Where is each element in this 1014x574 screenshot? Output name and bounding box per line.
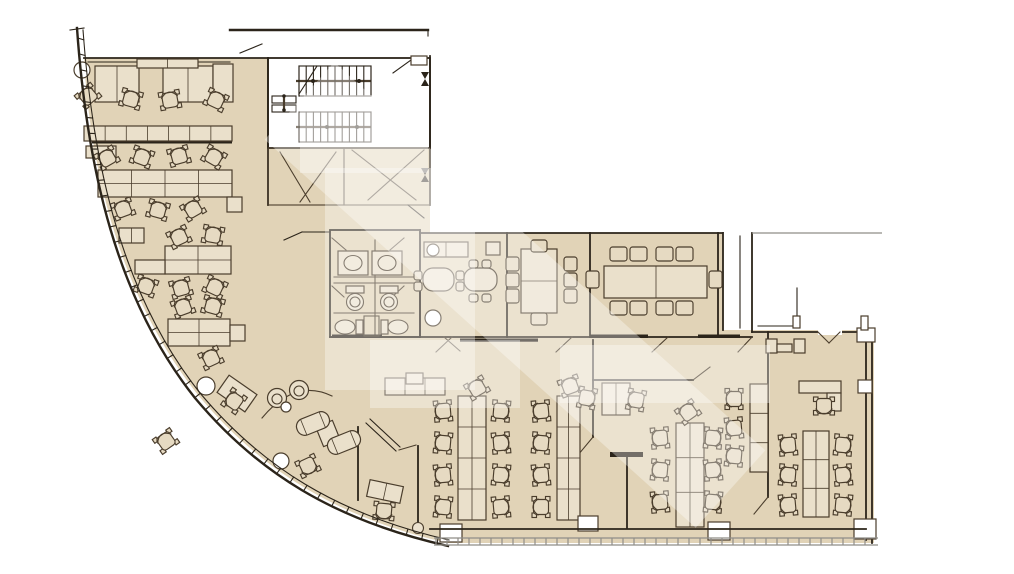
meeting-chair — [630, 247, 647, 261]
toilet-cistern — [356, 320, 363, 334]
desk-bench — [750, 384, 768, 472]
meeting-chair — [469, 294, 478, 302]
desk-bench — [168, 319, 230, 346]
desk-bench — [803, 431, 829, 517]
break-table — [464, 268, 497, 291]
column — [411, 56, 427, 65]
meeting-chair — [506, 289, 519, 303]
desk-bench — [135, 260, 165, 274]
meeting-chair — [564, 257, 577, 271]
task-chair — [491, 464, 511, 486]
meeting-chair — [456, 271, 464, 280]
task-chair — [778, 464, 798, 486]
task-chair — [650, 459, 670, 481]
desk-bench — [557, 396, 580, 520]
column — [861, 316, 868, 330]
meeting-chair — [506, 257, 519, 271]
desk-bench — [676, 423, 704, 527]
desk-bench — [119, 228, 144, 243]
door-leaf — [240, 44, 262, 53]
boardroom-table — [604, 266, 707, 298]
task-chair — [724, 445, 744, 467]
desk-bench — [230, 325, 245, 341]
column — [708, 522, 730, 540]
meeting-chair — [506, 273, 519, 287]
sink-basin — [378, 256, 396, 271]
task-chair — [532, 497, 550, 518]
column — [793, 316, 800, 328]
task-chair — [833, 494, 853, 516]
floor-plan-canvas: office floor plan with curved facade — [0, 0, 1014, 574]
meeting-chair — [564, 273, 577, 287]
meeting-chair — [531, 313, 547, 325]
meeting-chair — [456, 282, 464, 291]
meeting-chair — [676, 301, 693, 315]
toilet-cistern — [380, 286, 398, 293]
task-chair — [778, 494, 798, 516]
column — [440, 524, 462, 542]
meeting-chair — [482, 260, 491, 268]
break-table — [423, 268, 454, 291]
task-chair — [531, 432, 551, 454]
toilet-bowl — [388, 320, 408, 334]
column — [281, 402, 291, 412]
desk-bench — [799, 381, 841, 393]
toilet-bowl — [381, 294, 398, 311]
task-chair — [703, 427, 723, 449]
floor-plan-drawing: office floor plan with curved facade — [0, 0, 1014, 574]
column — [427, 244, 439, 256]
desk-bench — [766, 339, 777, 353]
task-chair — [833, 464, 853, 486]
meeting-chair — [469, 260, 478, 268]
toilet-bowl — [347, 294, 364, 311]
task-chair — [531, 400, 551, 422]
task-chair — [491, 432, 511, 454]
meeting-chair — [610, 247, 627, 261]
task-chair — [778, 434, 798, 456]
desk-bench — [137, 59, 198, 68]
meeting-chair — [586, 271, 599, 288]
meeting-chair — [656, 301, 673, 315]
tub-chair — [290, 381, 309, 400]
task-chair — [433, 400, 453, 422]
task-chair — [531, 464, 551, 486]
task-chair — [703, 459, 723, 481]
task-chair — [152, 428, 180, 455]
meeting-chair — [482, 294, 491, 302]
toilet-cistern — [346, 286, 364, 293]
meeting-chair — [414, 271, 422, 280]
column — [858, 380, 872, 393]
toilet-cistern — [381, 320, 388, 334]
toilet-bowl — [335, 320, 355, 334]
task-chair — [650, 491, 670, 513]
desk-bench — [165, 246, 231, 274]
desk-bench — [84, 126, 232, 141]
task-chair — [433, 464, 453, 486]
desk-bench — [794, 339, 805, 353]
task-chair — [433, 496, 453, 518]
task-chair — [725, 389, 743, 410]
task-chair — [491, 496, 511, 518]
meeting-chair — [656, 247, 673, 261]
meeting-chair — [564, 289, 577, 303]
column — [273, 453, 289, 469]
task-chair — [833, 434, 853, 456]
task-chair — [491, 400, 511, 422]
sink-basin — [344, 256, 362, 271]
meeting-chair — [531, 240, 547, 252]
task-chair — [650, 427, 670, 449]
meeting-chair — [630, 301, 647, 315]
desk-bench — [602, 383, 630, 415]
desk-bench — [227, 197, 242, 212]
task-chair — [814, 397, 835, 415]
meeting-chair — [610, 301, 627, 315]
meeting-chair — [676, 247, 693, 261]
desk-bench — [777, 344, 792, 352]
desk-bench — [98, 170, 232, 197]
column — [425, 310, 441, 326]
task-chair — [703, 491, 723, 513]
meeting-chair — [709, 271, 722, 288]
meeting-chair — [414, 282, 422, 291]
desk-bench — [458, 396, 486, 520]
desk-bench — [486, 242, 500, 255]
task-chair — [724, 417, 744, 439]
task-chair — [433, 432, 453, 454]
desk-bench — [406, 373, 423, 384]
